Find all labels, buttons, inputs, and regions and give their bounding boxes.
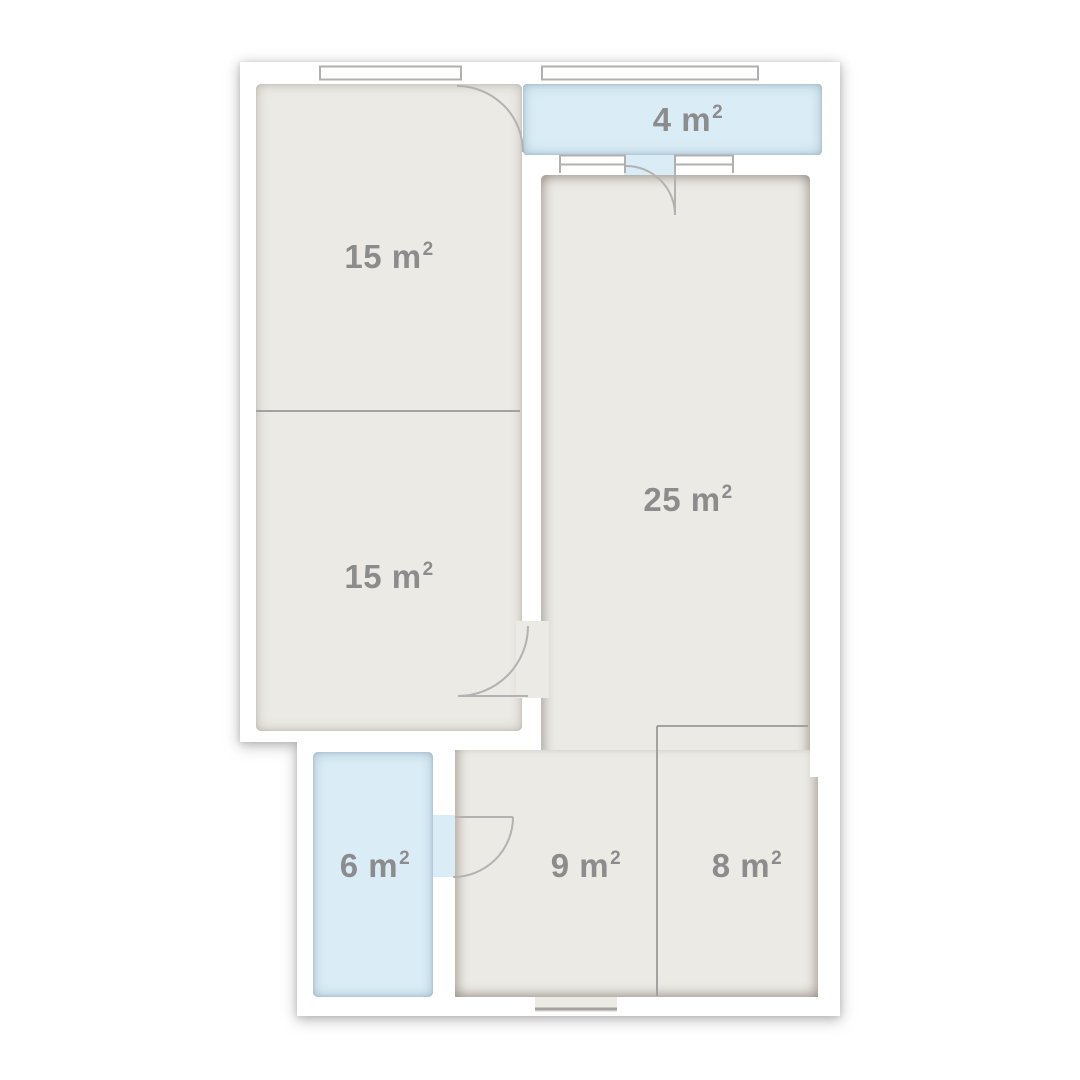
room-15-area [256,84,522,731]
door-opening-room15-room25 [516,621,549,698]
room-label-sup: 2 [712,102,723,123]
room-label-text: 4 m [653,101,711,138]
room-label-9: 9 m2 [551,847,621,885]
room-label-15-upper: 15 m2 [344,238,433,276]
room-label-text: 25 m [643,481,720,518]
room-label-8: 8 m2 [712,847,782,885]
room-label-text: 15 m [344,238,421,275]
door-opening-room6 [432,815,457,877]
room-label-text: 8 m [712,847,770,884]
room-label-sup: 2 [771,848,782,869]
room-label-sup: 2 [399,848,410,869]
room-label-sup: 2 [423,559,434,580]
door-opening-balcony-living [624,155,676,176]
room-25-area [541,175,810,777]
room-label-sup: 2 [722,482,733,503]
room-label-text: 6 m [340,847,398,884]
room-label-sup: 2 [610,848,621,869]
room-label-15-lower: 15 m2 [344,558,433,596]
room-label-6: 6 m2 [340,847,410,885]
room-label-25: 25 m2 [643,481,732,519]
room-label-text: 15 m [344,558,421,595]
room-label-text: 9 m [551,847,609,884]
room-label-sup: 2 [423,239,434,260]
room-label-balcony-4: 4 m2 [653,101,723,139]
floor-plan-canvas: 15 m2 15 m2 4 m2 25 m2 6 m2 9 m2 8 m2 [0,0,1080,1080]
